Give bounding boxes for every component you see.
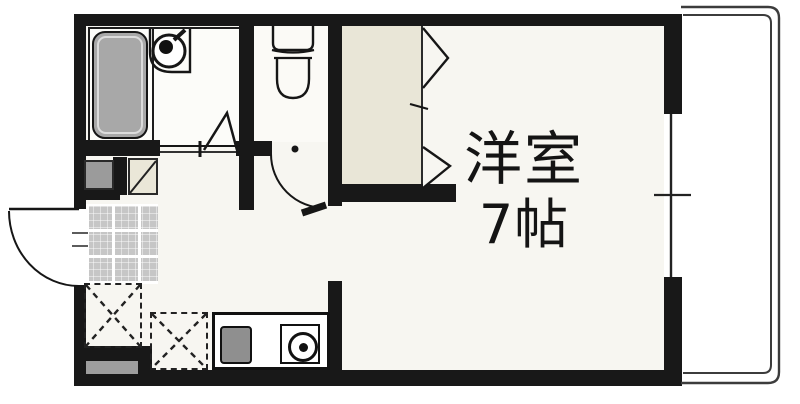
wall-bath-pillar: [239, 26, 254, 210]
entry-step: [86, 361, 138, 374]
floorplan: 洋室 7帖: [0, 0, 800, 404]
wall-bottom: [74, 370, 682, 386]
wall-entry-top: [74, 140, 160, 156]
washer-space-2: [150, 312, 208, 370]
bathtub: [92, 31, 148, 139]
wall-room-left-lower: [328, 281, 342, 386]
room-label: 洋室 7帖: [398, 130, 650, 252]
wall-right-lower: [664, 277, 682, 386]
entry-door-opening: [72, 209, 88, 285]
wall-toilet-bottom: [236, 141, 272, 156]
refrigerator-space: [84, 283, 142, 348]
room-name-text: 洋室: [398, 130, 650, 188]
balcony-railing: [681, 7, 779, 383]
washroom-floor: [152, 27, 244, 147]
stove-burner-icon: [288, 332, 318, 362]
entrance-tile: [86, 204, 158, 284]
gas-stove: [280, 324, 320, 364]
bathtub-rim: [97, 36, 143, 134]
room-size-text: 7帖: [398, 198, 650, 252]
wall-closet-left: [328, 14, 342, 206]
toilet-room-floor: [254, 26, 328, 142]
wall-top: [74, 14, 682, 26]
washer-space: [128, 158, 158, 195]
wall-right-upper: [664, 14, 682, 114]
kitchen-sink: [220, 326, 252, 364]
shoe-box: [84, 160, 114, 190]
